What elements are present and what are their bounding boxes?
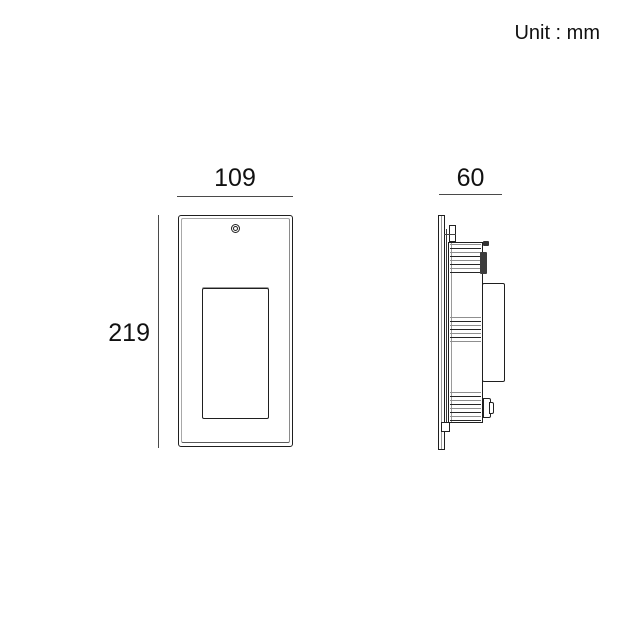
side-driver-box — [482, 283, 505, 382]
unit-label: Unit : mm — [503, 22, 600, 44]
side-clip-mark — [483, 241, 489, 246]
side-faceplate-edge-line — [441, 216, 442, 449]
side-faceplate — [438, 215, 445, 450]
side-top-tab — [449, 225, 456, 242]
side-cable-connector-tip — [489, 402, 494, 414]
side-ribs-bottom — [450, 392, 481, 422]
front-height-dimension-label: 219 — [96, 321, 150, 345]
side-top-tab-line — [444, 234, 456, 235]
front-width-dimension-label: 109 — [177, 166, 293, 190]
side-bottom-tab — [441, 422, 450, 432]
side-depth-dimension-line — [439, 194, 502, 195]
side-ribs-top — [450, 244, 481, 275]
screw-hole-center — [233, 226, 238, 231]
screw-hole — [231, 224, 240, 233]
light-window-outline — [202, 288, 269, 419]
side-retaining-clip — [480, 252, 487, 274]
side-ribs-middle — [450, 317, 481, 345]
side-depth-dimension-label: 60 — [439, 166, 502, 190]
drawing-canvas: Unit : mm 109 219 60 — [0, 0, 620, 620]
front-height-dimension-line — [158, 215, 159, 448]
front-width-dimension-line — [177, 196, 293, 197]
